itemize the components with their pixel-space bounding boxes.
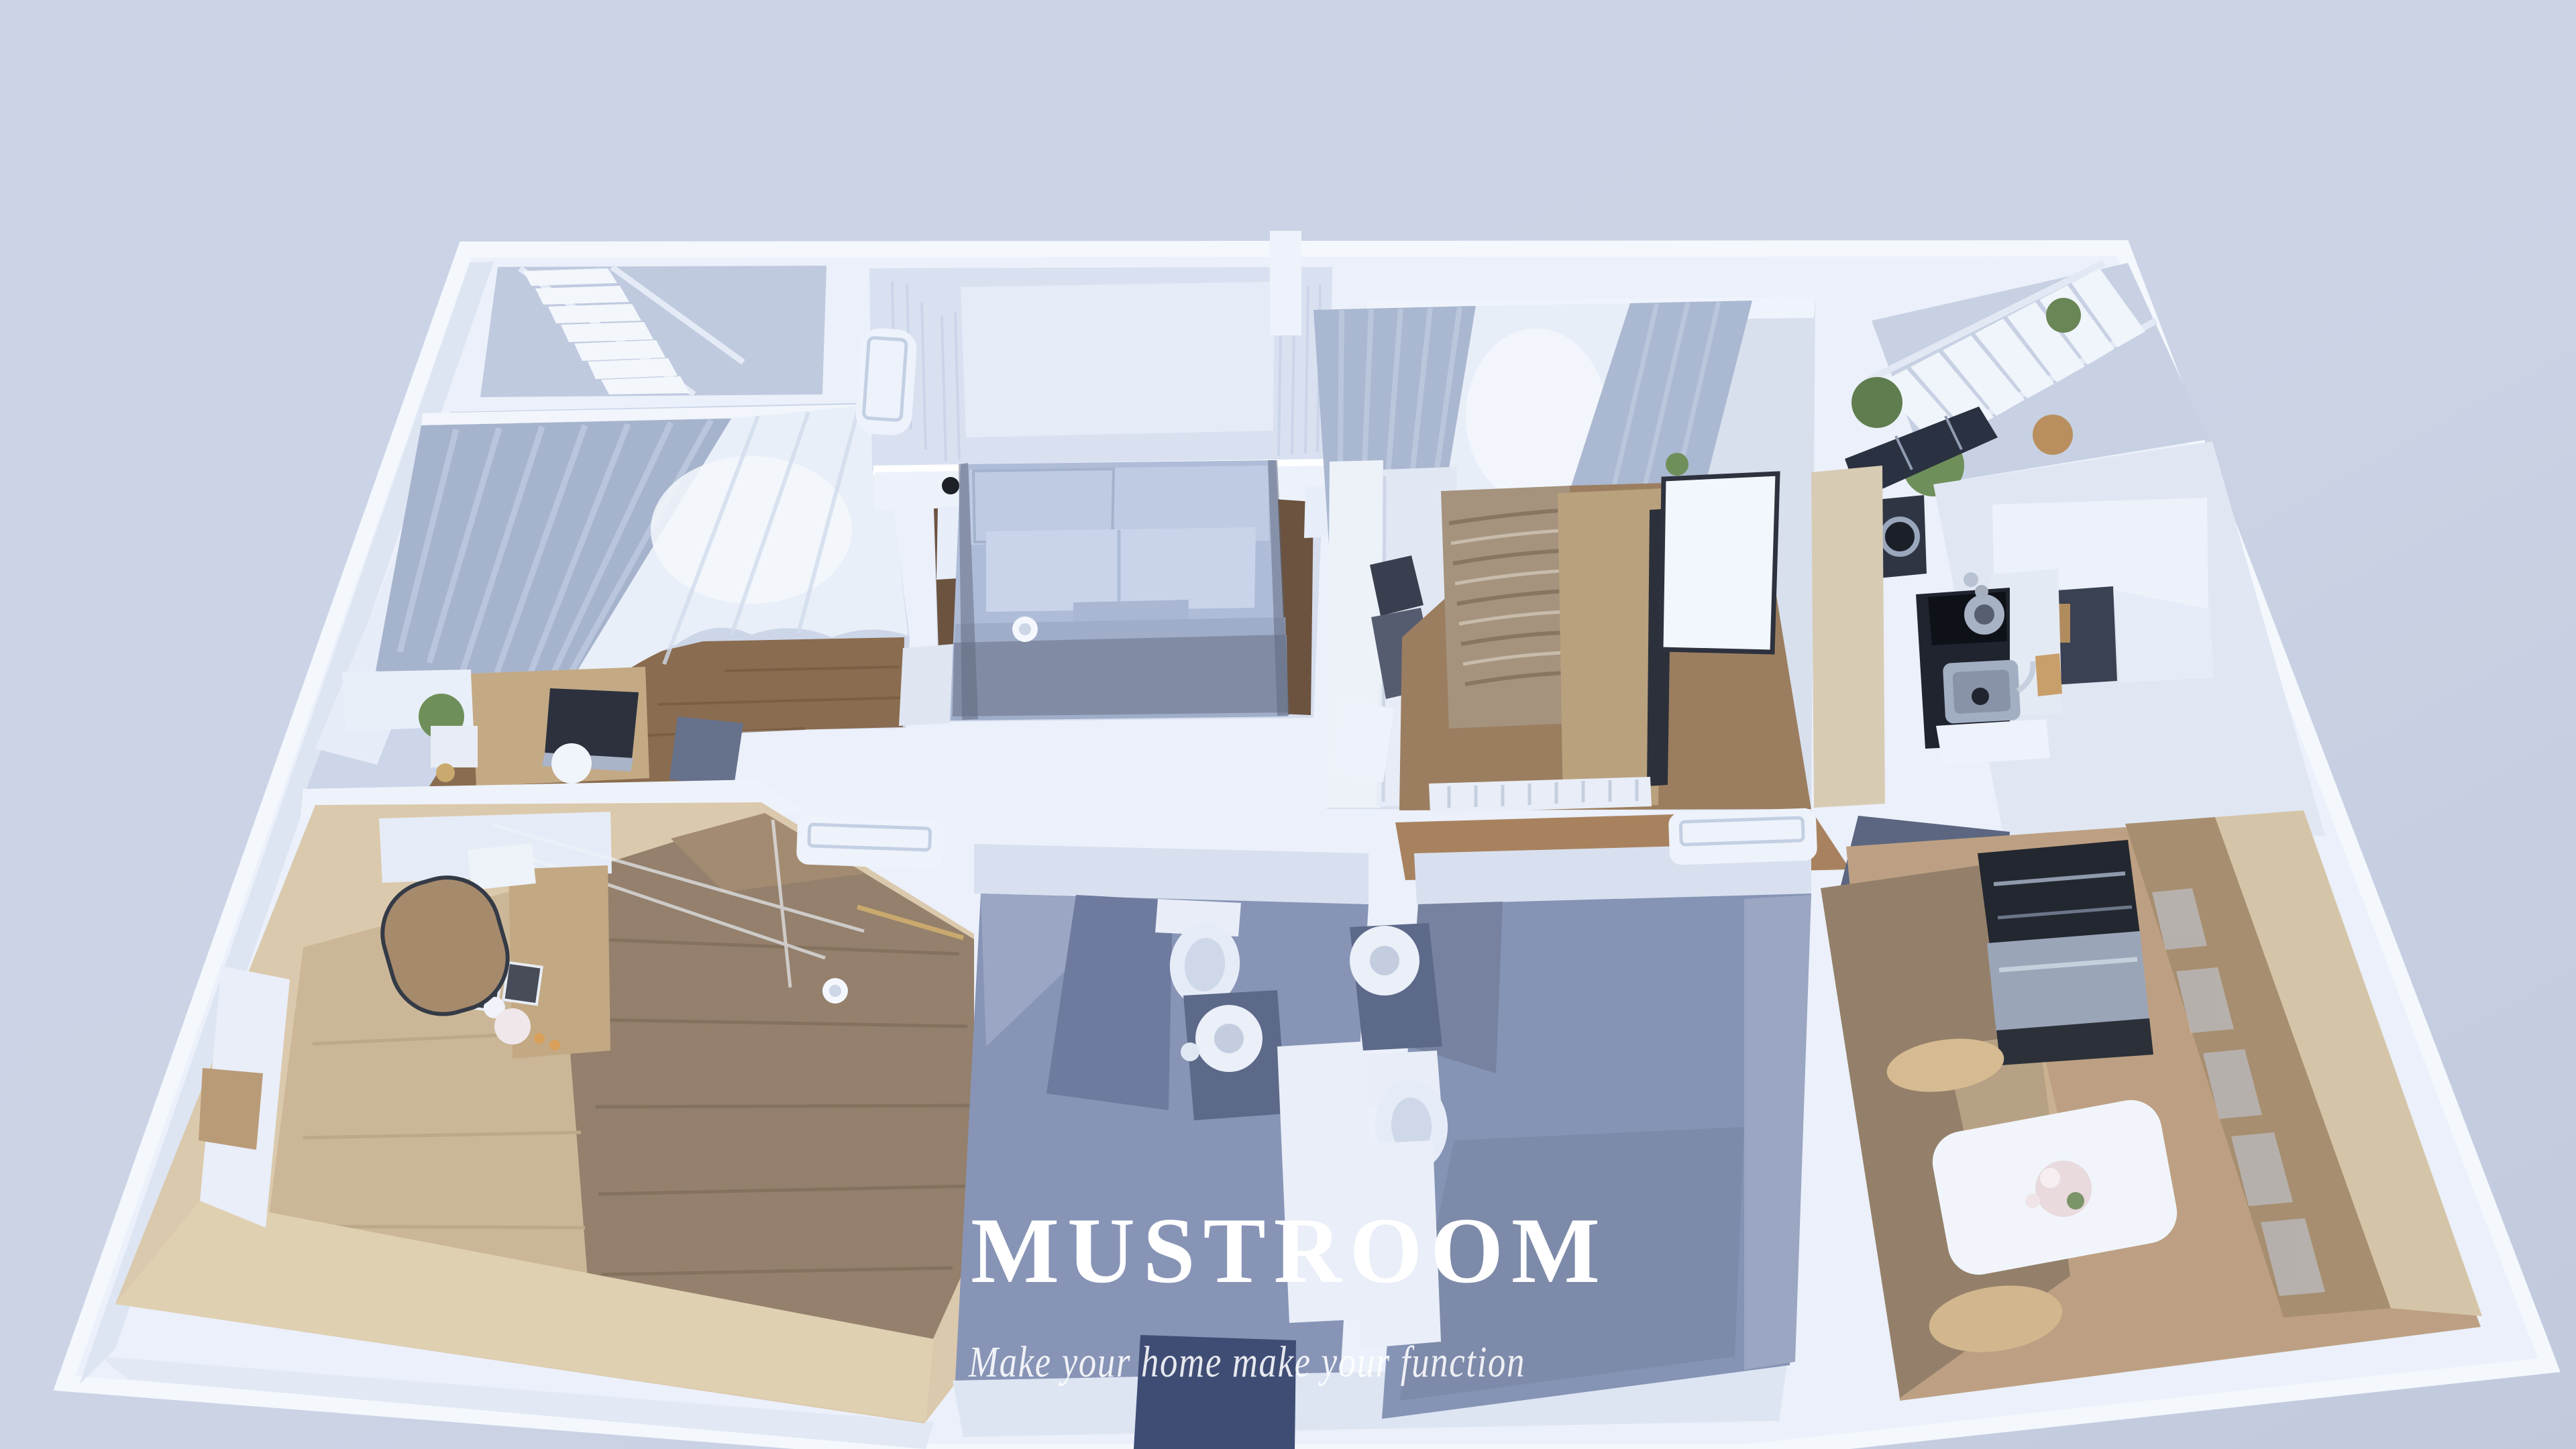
svg-text:Make your home make your funct: Make your home make your function: [968, 1338, 1525, 1387]
svg-text:MUSTROOM: MUSTROOM: [971, 1199, 1615, 1303]
